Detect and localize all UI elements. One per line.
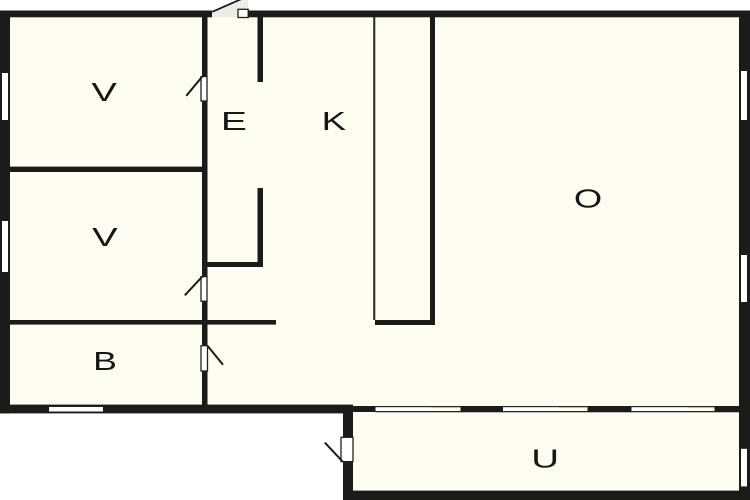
svg-text:V: V bbox=[91, 78, 117, 107]
svg-text:V: V bbox=[92, 222, 118, 251]
svg-text:B: B bbox=[93, 346, 117, 375]
svg-text:U: U bbox=[531, 444, 559, 473]
svg-text:E: E bbox=[221, 107, 247, 136]
svg-text:O: O bbox=[574, 183, 602, 213]
svg-text:K: K bbox=[322, 106, 346, 135]
